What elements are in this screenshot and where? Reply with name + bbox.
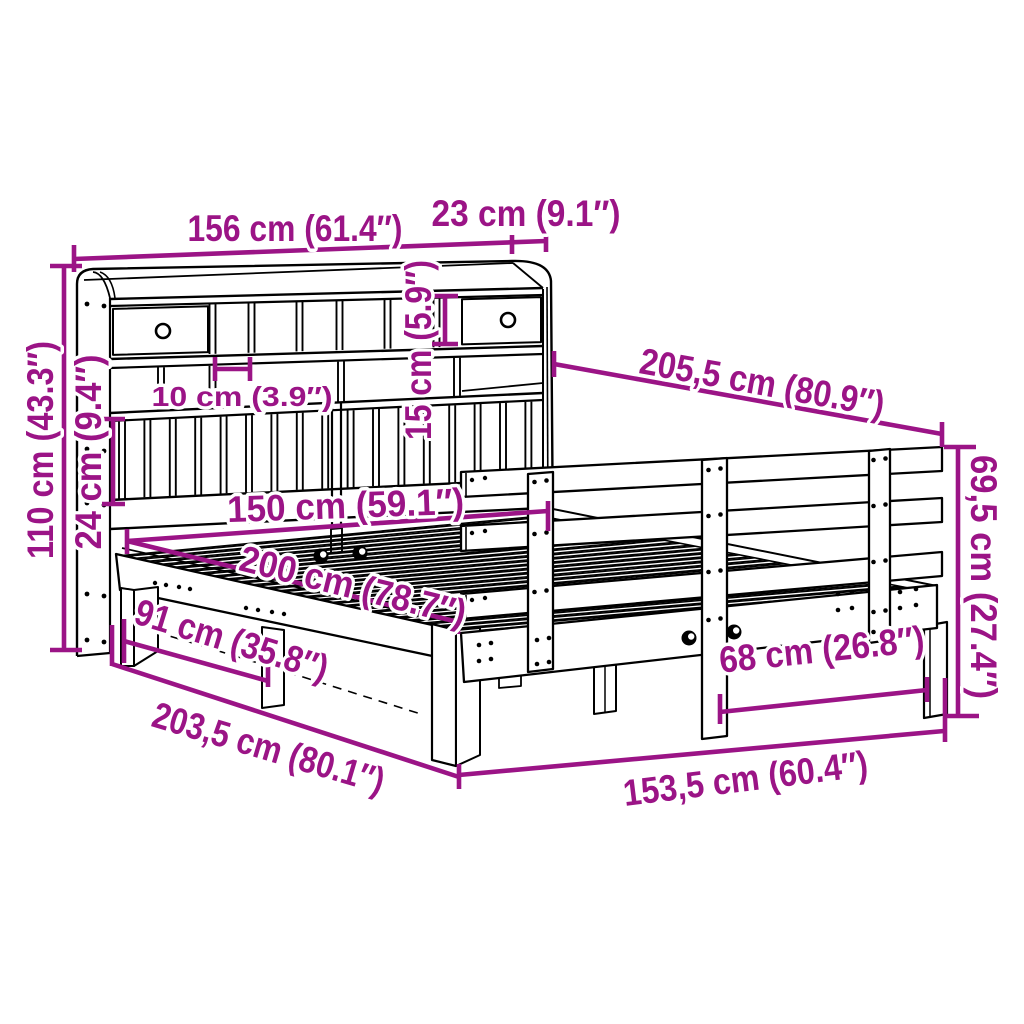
svg-text:150 cm (59.1″): 150 cm (59.1″) <box>226 481 464 530</box>
svg-text:24 cm (9.4″): 24 cm (9.4″) <box>68 355 109 550</box>
svg-text:10 cm (3.9″): 10 cm (3.9″) <box>152 381 333 412</box>
svg-text:156 cm (61.4″): 156 cm (61.4″) <box>188 208 403 249</box>
svg-text:23 cm (9.1″): 23 cm (9.1″) <box>432 193 621 234</box>
svg-text:15 cm (5.9″): 15 cm (5.9″) <box>398 260 439 440</box>
svg-text:69,5 cm (27.4″): 69,5 cm (27.4″) <box>963 455 1004 699</box>
svg-text:110 cm (43.3″): 110 cm (43.3″) <box>20 341 61 559</box>
